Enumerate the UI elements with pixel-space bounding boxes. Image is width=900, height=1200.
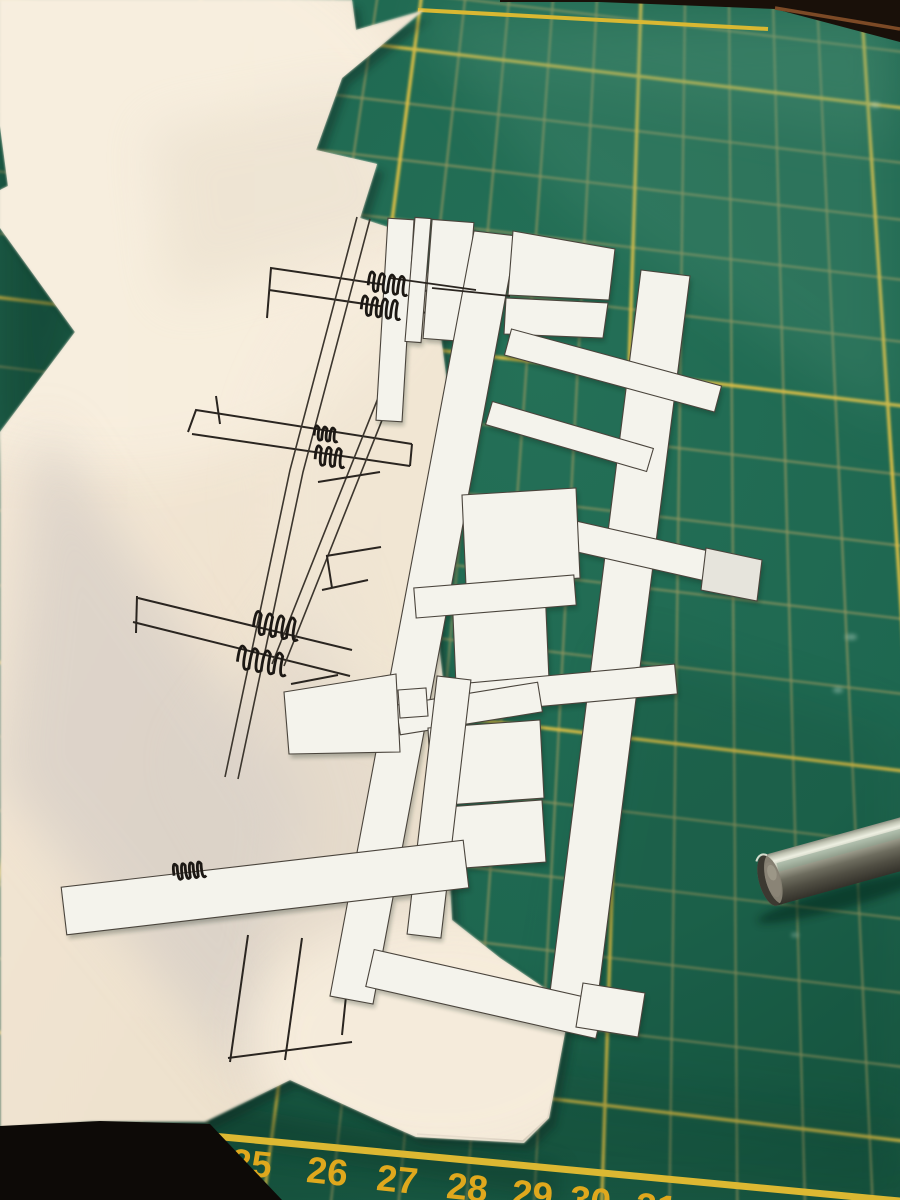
- svg-text:27: 27: [375, 1157, 420, 1200]
- svg-text:30: 30: [568, 1178, 613, 1200]
- svg-text:26: 26: [305, 1149, 350, 1194]
- svg-text:28: 28: [445, 1165, 490, 1200]
- svg-text:29: 29: [510, 1172, 555, 1200]
